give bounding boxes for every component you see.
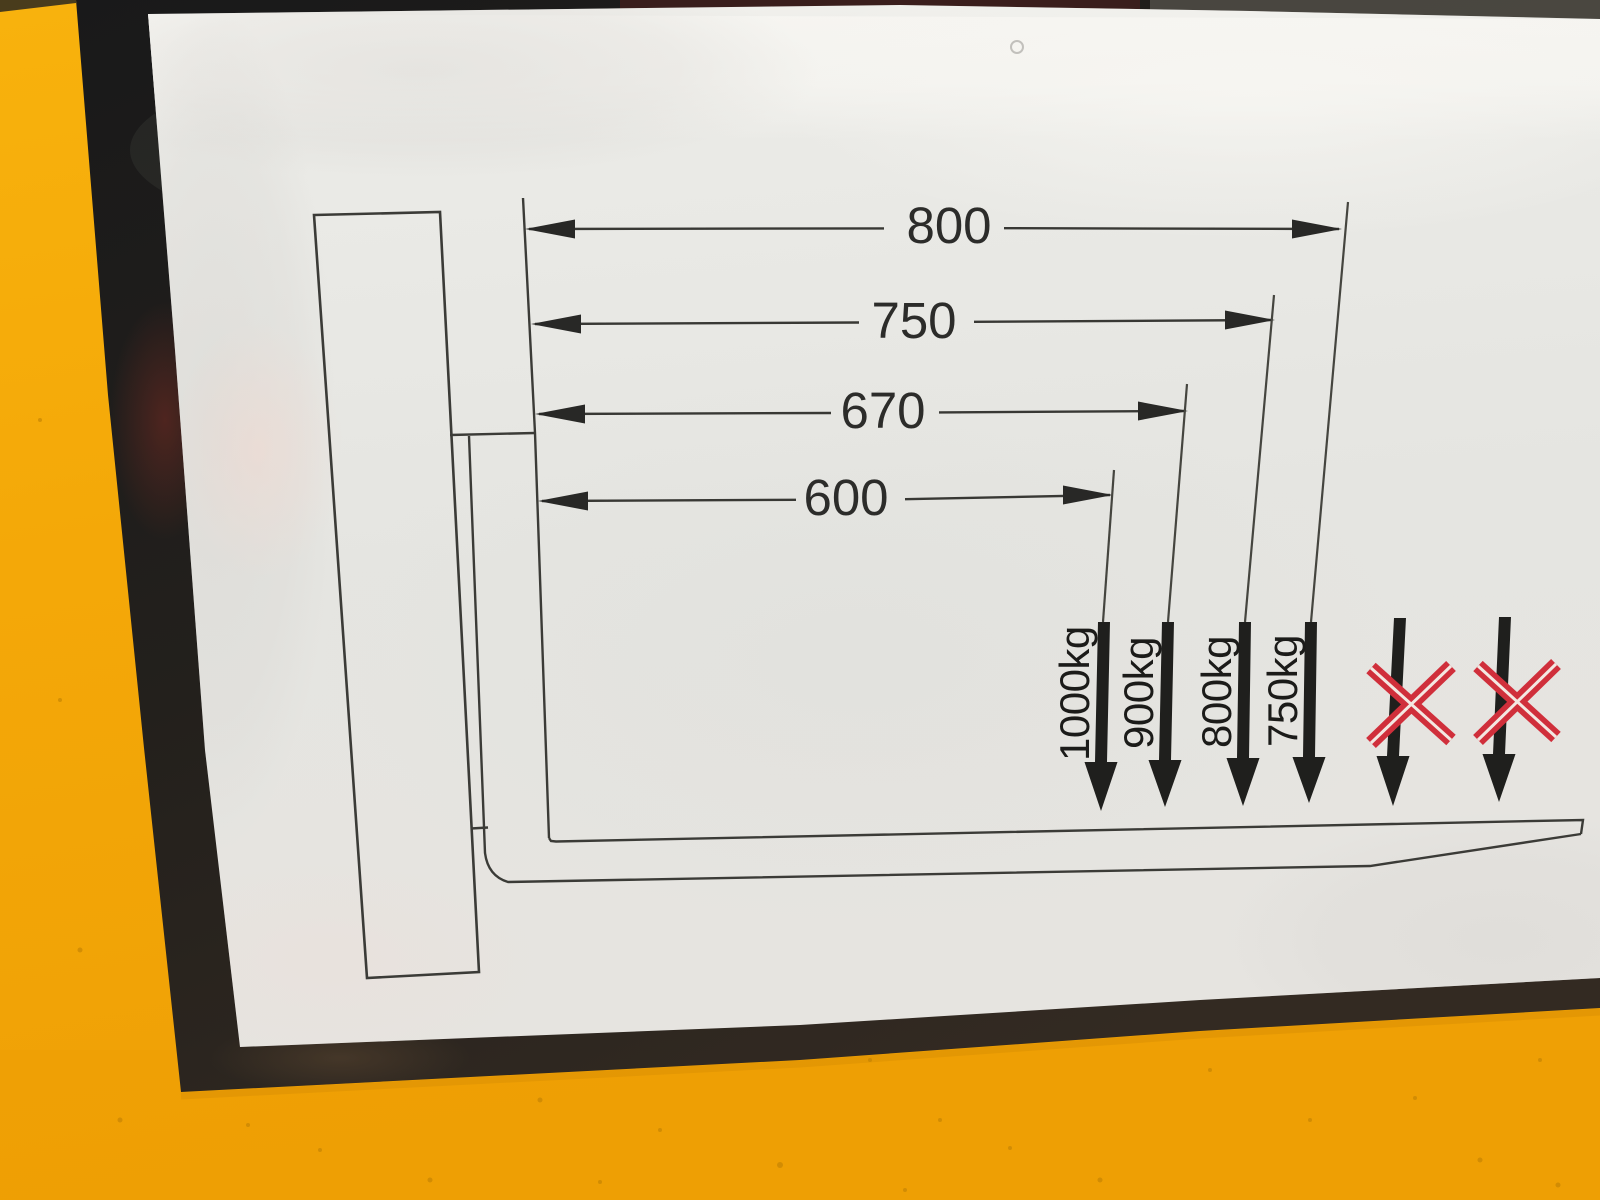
svg-text:800kg: 800kg	[1193, 636, 1240, 748]
svg-text:600: 600	[803, 469, 888, 526]
svg-text:1000kg: 1000kg	[1051, 626, 1098, 761]
svg-text:750: 750	[871, 292, 956, 349]
svg-text:670: 670	[840, 382, 925, 439]
svg-text:900kg: 900kg	[1115, 637, 1162, 749]
svg-text:750kg: 750kg	[1259, 635, 1306, 747]
svg-text:800: 800	[906, 197, 991, 254]
